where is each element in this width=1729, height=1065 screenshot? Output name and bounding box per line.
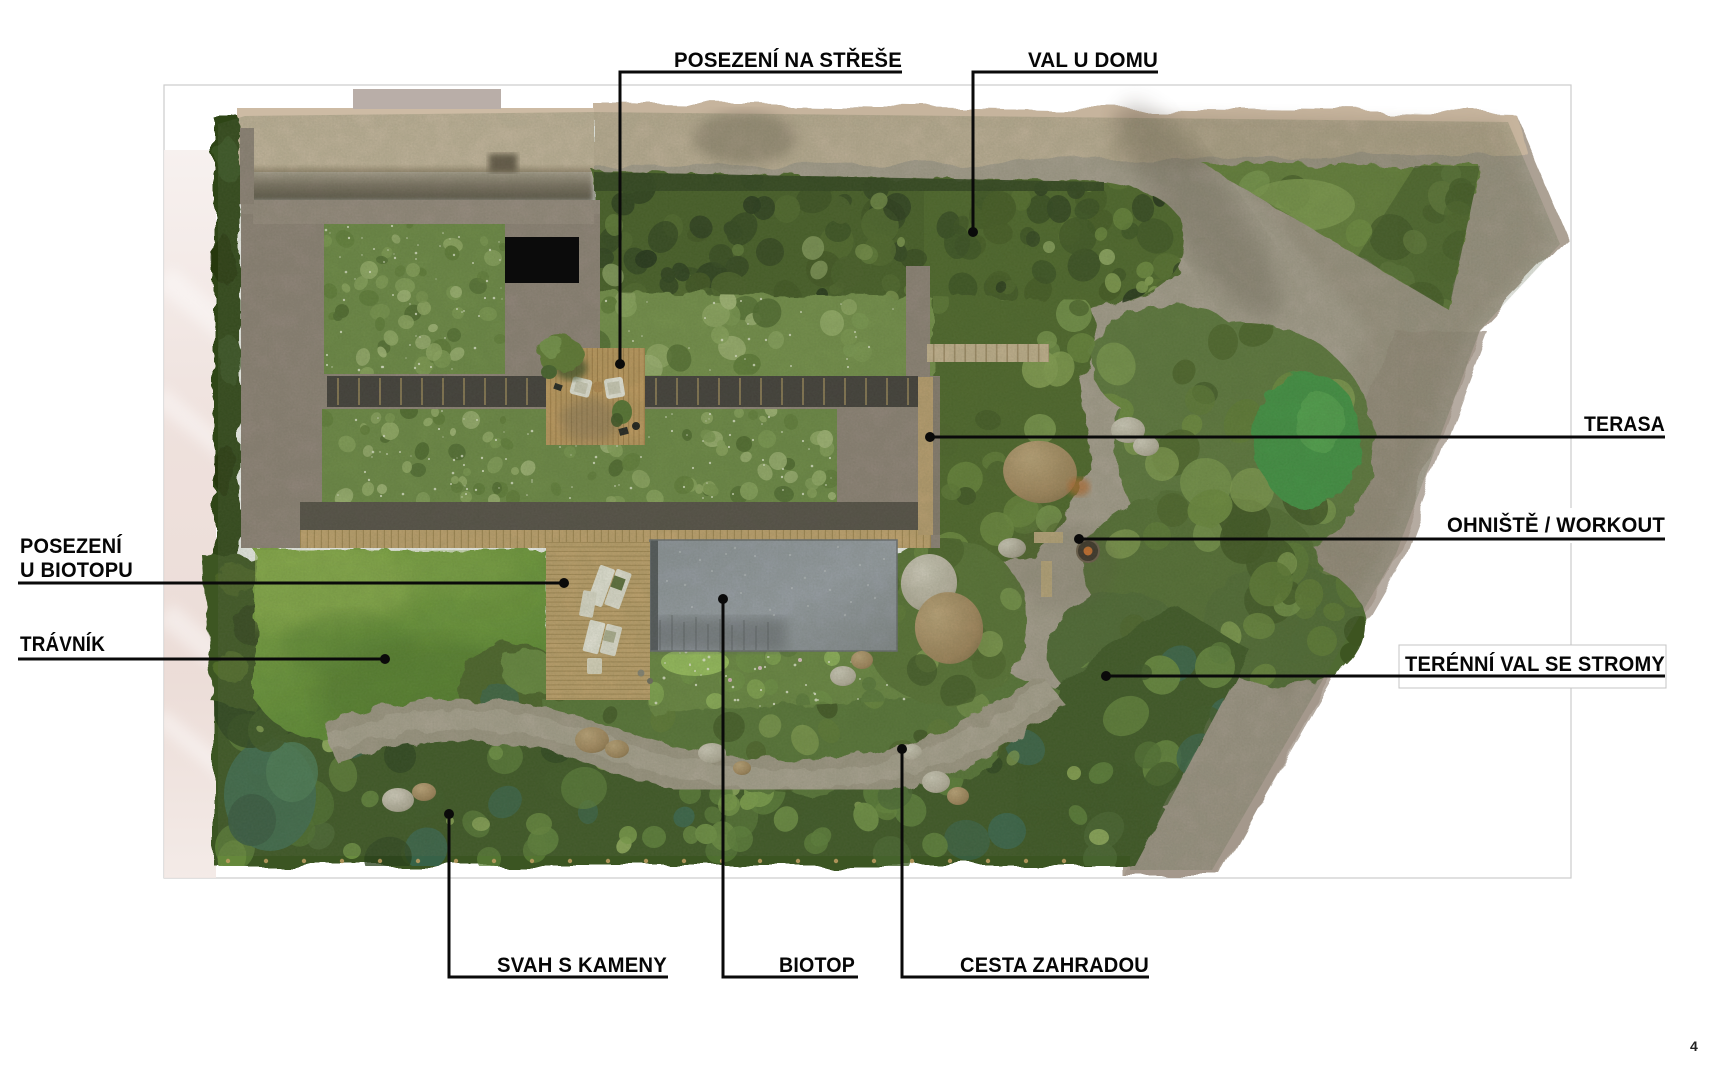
- svg-text:VAL U DOMU: VAL U DOMU: [1028, 49, 1158, 72]
- svg-text:4: 4: [1690, 1038, 1698, 1054]
- svg-text:TERASA: TERASA: [1584, 413, 1665, 436]
- svg-text:SVAH S KAMENY: SVAH S KAMENY: [497, 954, 667, 977]
- svg-text:POSEZENÍ NA STŘEŠE: POSEZENÍ NA STŘEŠE: [674, 48, 902, 72]
- svg-text:BIOTOP: BIOTOP: [779, 954, 855, 977]
- svg-text:TERÉNNÍ VAL SE STROMY: TERÉNNÍ VAL SE STROMY: [1405, 653, 1665, 676]
- svg-text:POSEZENÍ: POSEZENÍ: [20, 535, 123, 558]
- svg-text:U BIOTOPU: U BIOTOPU: [20, 559, 133, 582]
- svg-text:CESTA ZAHRADOU: CESTA ZAHRADOU: [960, 954, 1149, 977]
- svg-text:OHNIŠTĚ / WORKOUT: OHNIŠTĚ / WORKOUT: [1447, 513, 1665, 537]
- svg-text:TRÁVNÍK: TRÁVNÍK: [20, 633, 105, 656]
